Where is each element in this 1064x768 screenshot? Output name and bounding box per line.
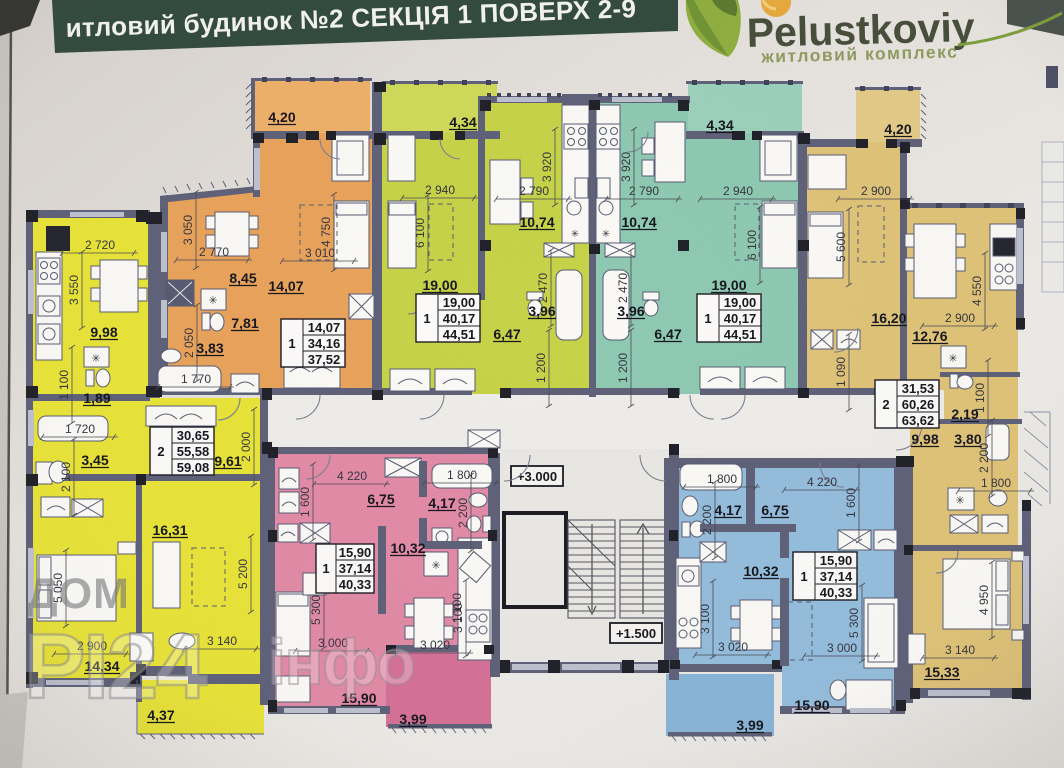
svg-text:РІ24: РІ24 <box>24 616 207 718</box>
svg-text:інфо: інфо <box>268 626 415 698</box>
svg-text:ДОМ: ДОМ <box>27 570 130 618</box>
